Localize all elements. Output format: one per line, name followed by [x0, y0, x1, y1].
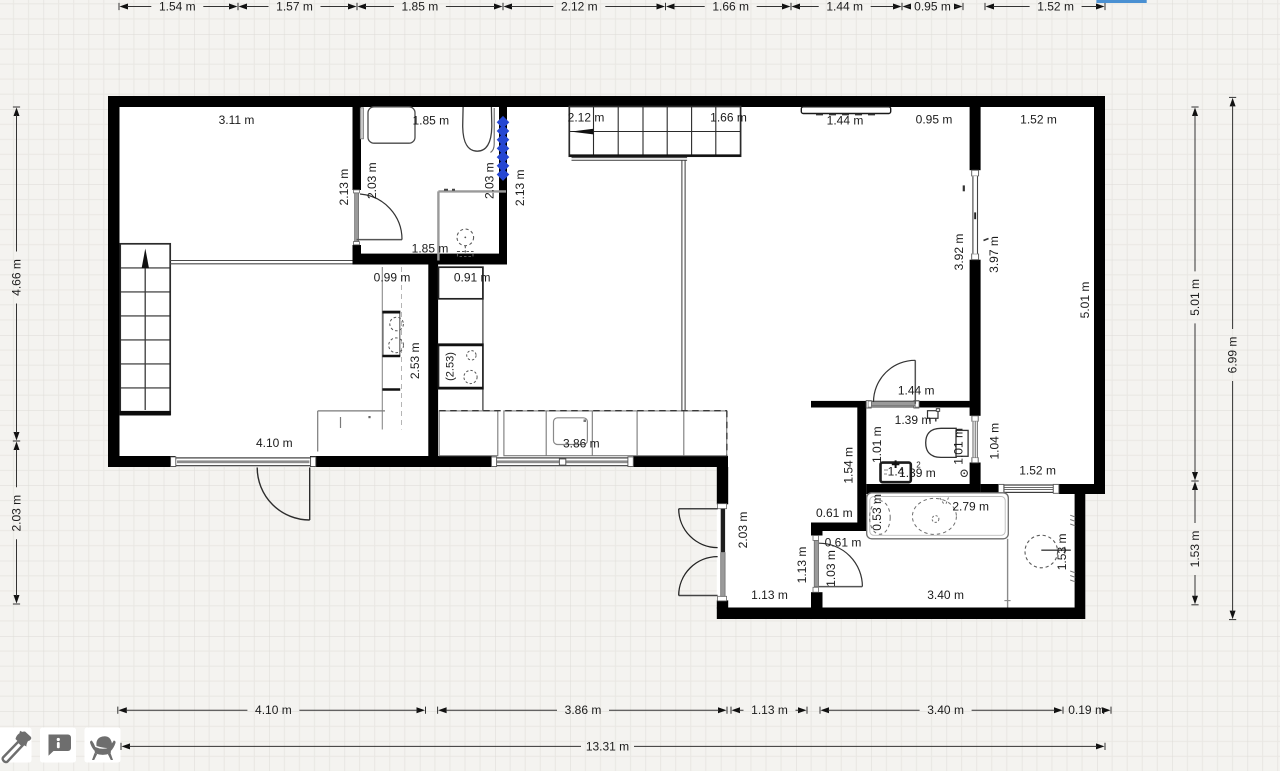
svg-text:1.04 m: 1.04 m [988, 423, 1002, 460]
svg-text:5.01 m: 5.01 m [1078, 282, 1092, 319]
svg-text:2.12 m: 2.12 m [561, 0, 598, 14]
svg-text:(2.53): (2.53) [445, 352, 457, 381]
svg-text:6.99 m: 6.99 m [1226, 337, 1240, 374]
svg-text:1.4: 1.4 [888, 464, 905, 478]
svg-text:1.85 m: 1.85 m [412, 241, 449, 255]
svg-text:0.91 m: 0.91 m [454, 271, 491, 285]
svg-text:5.01 m: 5.01 m [1188, 279, 1202, 316]
svg-text:1.66 m: 1.66 m [712, 0, 749, 14]
svg-text:4.10 m: 4.10 m [256, 436, 293, 450]
svg-text:1.54 m: 1.54 m [841, 447, 855, 484]
svg-text:3.92 m: 3.92 m [952, 234, 966, 271]
svg-text:1.13 m: 1.13 m [751, 703, 788, 717]
svg-text:1.53 m: 1.53 m [1188, 531, 1202, 568]
svg-text:3.11 m: 3.11 m [219, 113, 255, 127]
svg-text:1.13 m: 1.13 m [751, 588, 788, 602]
svg-text:1.44 m: 1.44 m [827, 113, 864, 127]
svg-text:2.03 m: 2.03 m [365, 162, 379, 199]
svg-text:1.01 m: 1.01 m [951, 428, 965, 465]
svg-text:2.13 m: 2.13 m [337, 169, 351, 206]
svg-text:2.13 m: 2.13 m [513, 169, 527, 206]
svg-text:1.39 m: 1.39 m [895, 413, 932, 427]
svg-text:1.66 m: 1.66 m [710, 110, 747, 124]
svg-text:3.40 m: 3.40 m [927, 703, 964, 717]
svg-text:1.52 m: 1.52 m [1020, 113, 1057, 127]
svg-text:3.40 m: 3.40 m [927, 588, 964, 602]
svg-text:1.44 m: 1.44 m [898, 383, 935, 397]
svg-text:4.10 m: 4.10 m [255, 703, 292, 717]
svg-text:0.61 m: 0.61 m [816, 506, 853, 520]
svg-text:0.53 m: 0.53 m [870, 494, 884, 531]
svg-text:1.52 m: 1.52 m [1019, 463, 1056, 477]
svg-text:1.01 m: 1.01 m [870, 426, 884, 463]
svg-text:1.85 m: 1.85 m [412, 113, 449, 127]
svg-text:1.13 m: 1.13 m [795, 547, 809, 584]
svg-text:3.86 m: 3.86 m [565, 703, 602, 717]
svg-text:1.54 m: 1.54 m [159, 0, 196, 14]
svg-text:0.95 m: 0.95 m [916, 113, 953, 127]
svg-text:2.53 m: 2.53 m [408, 342, 422, 379]
svg-text:1.85 m: 1.85 m [402, 0, 439, 14]
svg-text:1.53 m: 1.53 m [1055, 534, 1069, 571]
svg-text:3.86 m: 3.86 m [563, 437, 600, 451]
svg-text:4.66 m: 4.66 m [10, 259, 24, 296]
svg-text:2.12 m: 2.12 m [568, 110, 605, 124]
svg-text:2.03 m: 2.03 m [10, 495, 24, 532]
svg-text:2.03 m: 2.03 m [483, 162, 497, 199]
svg-text:0.99 m: 0.99 m [374, 271, 411, 285]
svg-text:1.44 m: 1.44 m [826, 0, 863, 14]
svg-text:13.31 m: 13.31 m [586, 739, 629, 753]
svg-text:0.19 m: 0.19 m [1068, 703, 1105, 717]
svg-text:0.95 m: 0.95 m [914, 0, 951, 14]
svg-text:1.52 m: 1.52 m [1037, 0, 1074, 14]
svg-text:0.61 m: 0.61 m [825, 536, 862, 550]
svg-text:1.57 m: 1.57 m [276, 0, 313, 14]
svg-text:2.03 m: 2.03 m [736, 512, 750, 549]
svg-text:3.97 m: 3.97 m [987, 236, 1001, 273]
svg-text:2: 2 [916, 461, 921, 470]
svg-text:2.79 m: 2.79 m [952, 500, 989, 514]
svg-text:1.03 m: 1.03 m [824, 550, 838, 587]
